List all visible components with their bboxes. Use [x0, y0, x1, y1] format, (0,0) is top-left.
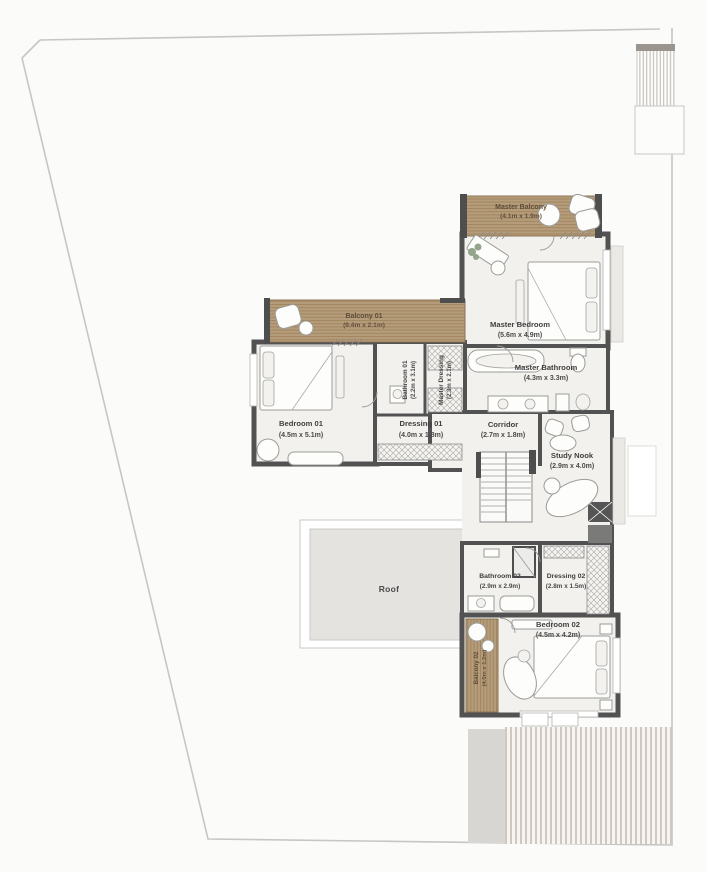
planter-strip-lower [613, 438, 625, 524]
wardrobe-master-dressing-top [428, 346, 462, 370]
svg-text:Bedroom 02: Bedroom 02 [536, 620, 580, 629]
wardrobe-master-dressing-bottom [428, 388, 462, 412]
svg-text:Dressing 01: Dressing 01 [399, 419, 443, 428]
svg-text:(2.9m x 4.0m): (2.9m x 4.0m) [550, 463, 594, 470]
roof-label: Roof [379, 584, 400, 594]
svg-text:(2.7m x 1.8m): (2.7m x 1.8m) [481, 432, 525, 439]
svg-text:Balcony 01: Balcony 01 [346, 313, 383, 320]
svg-text:(4.0m x 1.8m): (4.0m x 1.8m) [399, 432, 443, 439]
svg-text:Bedroom 01: Bedroom 01 [279, 419, 324, 428]
deck-slats [505, 727, 672, 844]
svg-text:(4.5m x 4.2m): (4.5m x 4.2m) [536, 632, 580, 639]
pergola-top [635, 44, 684, 154]
deck-bottom [468, 727, 672, 844]
floor-plan-drawing: Roof [0, 0, 707, 872]
svg-text:Master Dressing: Master Dressing [438, 355, 445, 405]
window-bedroom-01 [250, 354, 257, 406]
floor-plan-page: Roof [0, 0, 707, 872]
threshold-1 [522, 713, 548, 726]
svg-text:(4.5m x 5.1m): (4.5m x 5.1m) [279, 432, 323, 439]
window-bedroom-02 [613, 638, 620, 693]
svg-text:Corridor: Corridor [488, 420, 518, 429]
svg-text:(2.8m x 1.5m): (2.8m x 1.5m) [546, 583, 587, 590]
svg-text:Bathroom 01: Bathroom 01 [402, 360, 409, 400]
planter-strip-upper [611, 246, 623, 342]
svg-text:Master Bedroom: Master Bedroom [490, 320, 550, 329]
svg-text:(4.3m x 3.3m): (4.3m x 3.3m) [524, 375, 568, 382]
deck-side-strip [468, 729, 505, 843]
threshold-2 [552, 713, 578, 726]
svg-text:(9.4m x 2.1m): (9.4m x 2.1m) [343, 322, 385, 329]
window-master-bedroom [603, 250, 610, 330]
svg-text:Master Bathroom: Master Bathroom [515, 363, 578, 372]
svg-text:Dressing 02: Dressing 02 [547, 573, 586, 580]
svg-text:Master Balcony: Master Balcony [495, 204, 547, 211]
svg-text:(5.6m x 4.9m): (5.6m x 4.9m) [498, 332, 542, 339]
roof-slab: Roof [300, 520, 478, 648]
terrace-box [628, 446, 656, 516]
svg-text:Study Nook: Study Nook [551, 451, 594, 460]
staircase [476, 450, 536, 522]
wardrobe-dressing-02-side [587, 546, 609, 614]
svg-text:Balcony 02: Balcony 02 [473, 651, 480, 684]
bedroom-01-bed [260, 346, 344, 410]
svg-text:Bathroom 02: Bathroom 02 [479, 573, 521, 580]
svg-text:(4.1m x 1.9m): (4.1m x 1.9m) [500, 213, 542, 220]
svg-text:(2.9m x 2.9m): (2.9m x 2.9m) [480, 583, 521, 590]
wardrobe-dressing-01 [378, 444, 462, 460]
svg-text:(2.2m x 3.1m): (2.2m x 3.1m) [411, 361, 417, 399]
wardrobe-dressing-02-top [544, 546, 584, 558]
svg-text:(4.0m x 1.2m): (4.0m x 1.2m) [482, 650, 488, 687]
svg-text:(2.3m x 2.1m): (2.3m x 2.1m) [447, 361, 453, 399]
